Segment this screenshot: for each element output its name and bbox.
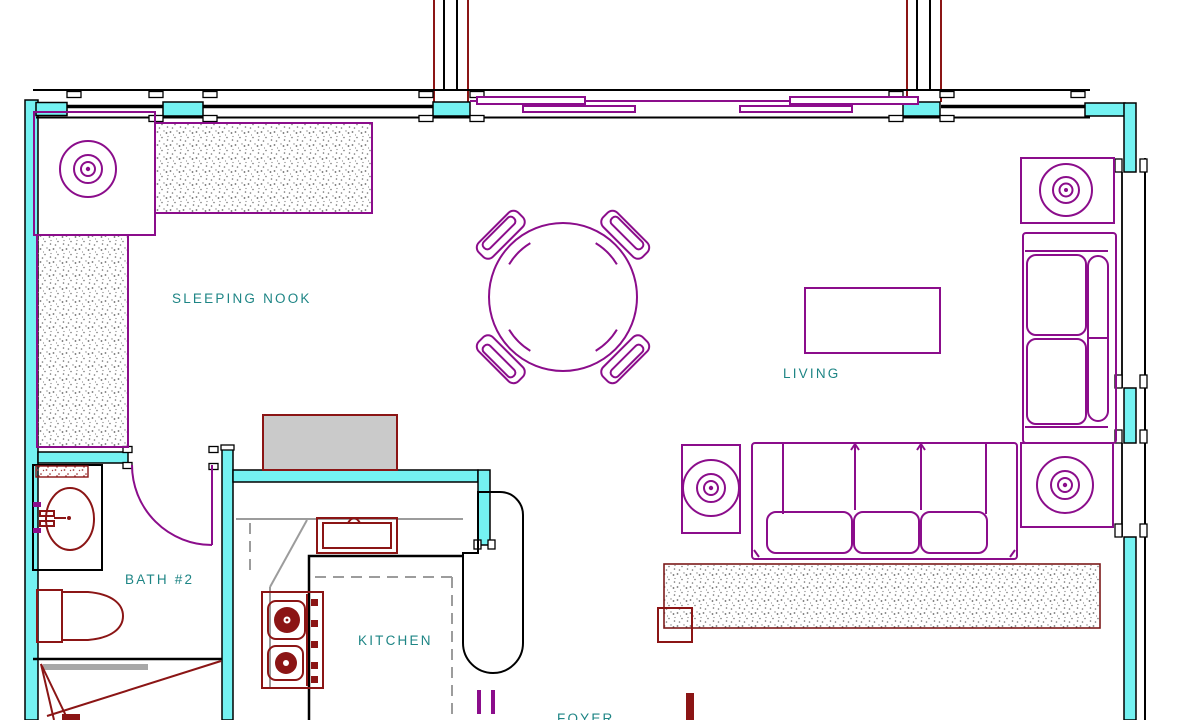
room-label-bath2: BATH #2 [125, 572, 194, 587]
faucet [40, 511, 71, 526]
room-label-foyer: FOYER [557, 711, 615, 720]
railing-post [686, 693, 694, 720]
interior-walls [38, 445, 495, 720]
sofa [752, 443, 1017, 559]
toilet [37, 590, 123, 642]
room-label-sleeping-nook: SLEEPING NOOK [172, 291, 312, 306]
living-area: LIVING [682, 158, 1116, 559]
sliding-door-panels [470, 97, 918, 112]
room-label-living: LIVING [783, 366, 840, 381]
loveseat [1023, 233, 1116, 443]
floor-plan-canvas: SLEEPING NOOK [0, 0, 1189, 720]
dining-chairs [474, 208, 652, 386]
stairs [41, 661, 221, 720]
cabinet-block [263, 415, 397, 470]
vanity-backsplash [36, 466, 88, 477]
window-post [433, 102, 470, 116]
end-table-top-right [1021, 158, 1114, 223]
deck-posts-right [907, 0, 941, 102]
right-wall [1115, 103, 1147, 720]
sleeping-nook: SLEEPING NOOK [34, 112, 372, 447]
dining-area [474, 208, 652, 386]
deck-posts-left [434, 0, 468, 102]
coffee-table [805, 288, 940, 353]
range-stove [262, 592, 323, 688]
end-table-left [682, 445, 740, 533]
bath-door [132, 465, 212, 545]
table-lamp [60, 141, 116, 197]
bed-vertical [37, 235, 128, 447]
floor-plan: SLEEPING NOOK [0, 0, 1189, 720]
chair-seat-arcs [508, 242, 618, 352]
window-post [163, 102, 203, 116]
kitchen-wall [233, 470, 478, 482]
bathroom: BATH #2 [33, 465, 222, 659]
deck-strip [658, 564, 1100, 720]
end-table-right [1021, 443, 1113, 527]
bath-top-wall [38, 452, 128, 463]
round-dining-table [489, 223, 637, 371]
kitchen-wall-stub [478, 470, 490, 545]
hall-wall [222, 447, 233, 720]
kitchen-sink [317, 518, 397, 553]
room-label-kitchen: KITCHEN [358, 633, 433, 648]
eating-bar [463, 492, 523, 673]
bed-horizontal [155, 123, 372, 213]
